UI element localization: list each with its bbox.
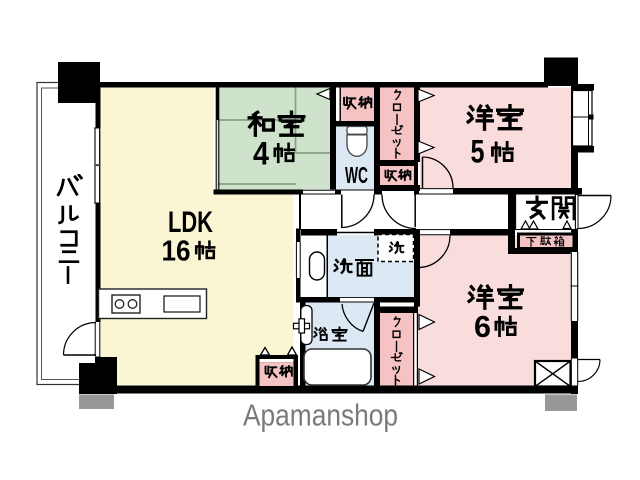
svg-text:4: 4 bbox=[253, 136, 269, 172]
svg-text:Apamanshop: Apamanshop bbox=[243, 398, 398, 433]
svg-text:WC: WC bbox=[345, 162, 368, 188]
svg-text:LDK: LDK bbox=[168, 206, 213, 239]
svg-text:6: 6 bbox=[474, 309, 491, 344]
svg-text:16: 16 bbox=[162, 236, 191, 268]
svg-text:5: 5 bbox=[471, 134, 485, 170]
